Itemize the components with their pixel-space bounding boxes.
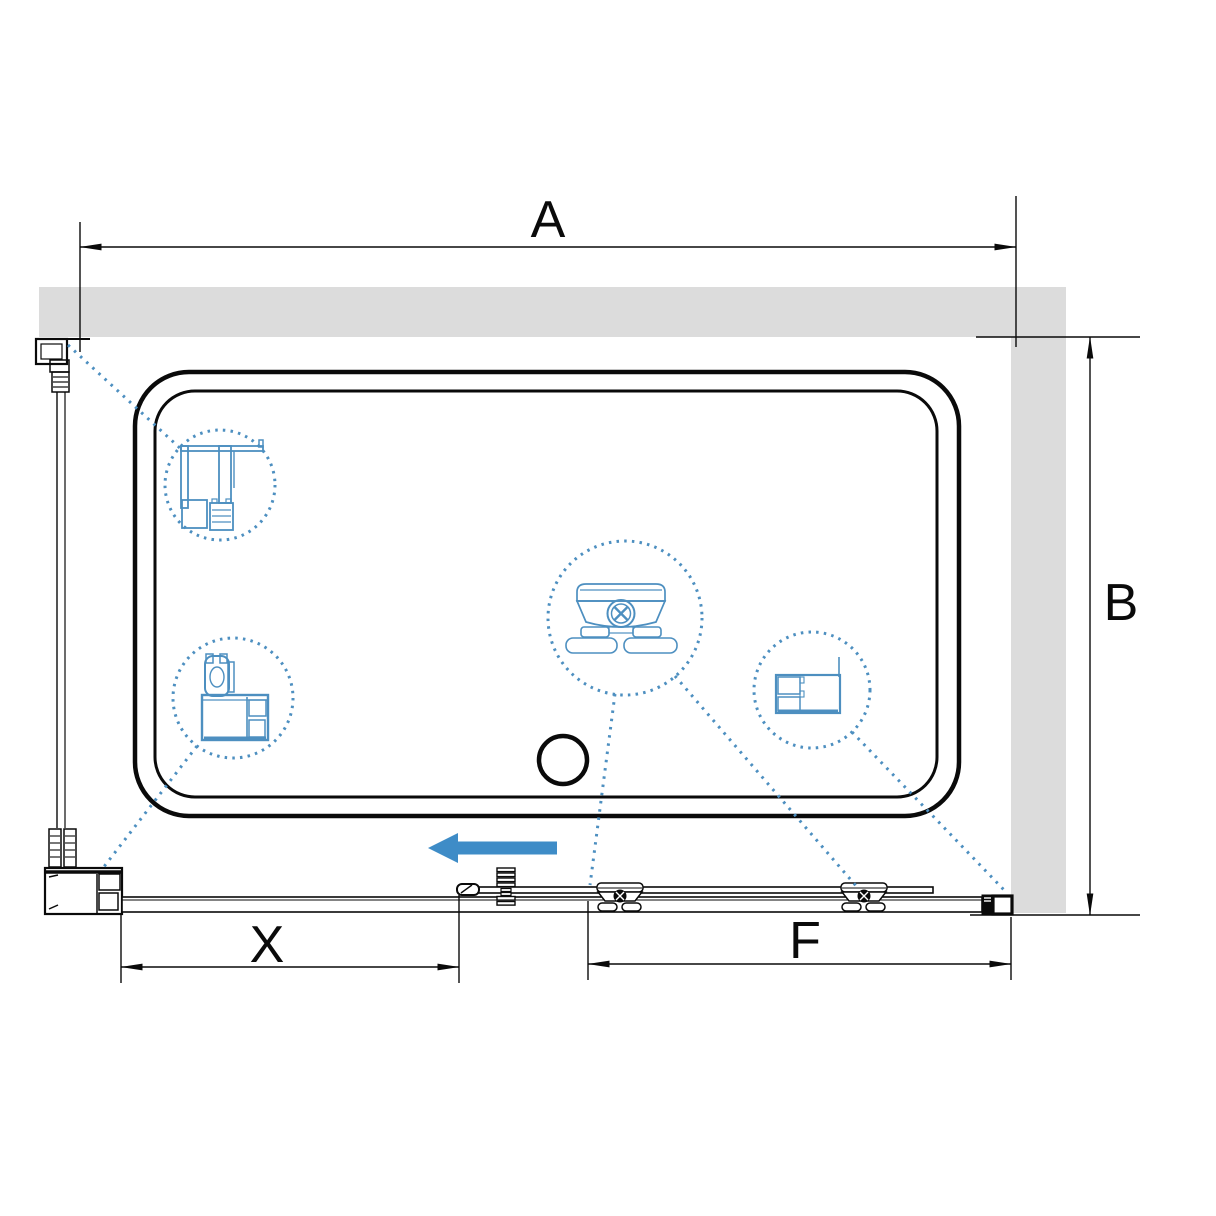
shower-tray (135, 372, 959, 816)
rail-end-block (982, 895, 1012, 914)
dimension-f: F (588, 901, 1011, 980)
bottom-left-wall-profile (49, 829, 76, 867)
left-side-panel (36, 339, 122, 914)
right-wall (1011, 337, 1066, 913)
door-end-cap (457, 884, 479, 895)
dimension-x-label: X (250, 916, 285, 974)
dimension-b-label: B (1104, 574, 1139, 632)
slide-direction-arrow-icon (428, 833, 557, 863)
dimension-a-label: A (531, 191, 566, 249)
top-left-wall-profile (36, 339, 90, 392)
back-wall (39, 287, 1066, 337)
door-handle (497, 868, 515, 905)
bottom-left-corner-block (45, 868, 122, 914)
shower-enclosure-plan-drawing: A B X F (0, 0, 1216, 1216)
tray-outer-edge (135, 372, 959, 816)
drawing-canvas: A B X F (0, 0, 1216, 1216)
dimension-f-label: F (789, 912, 821, 970)
